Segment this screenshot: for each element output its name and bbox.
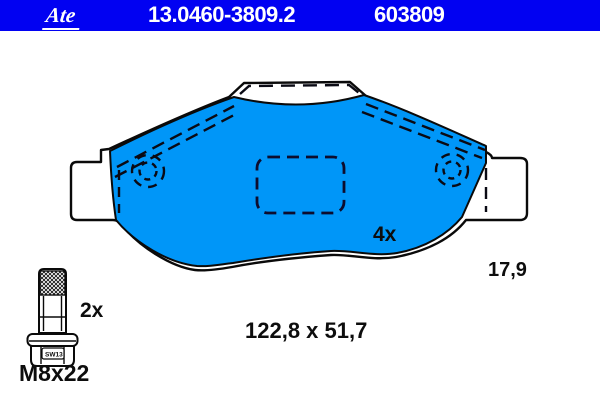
bolt-quantity-label: 2x xyxy=(80,299,104,322)
wrench-size-label: SW13 xyxy=(45,352,63,359)
bolt-thread-hatch xyxy=(40,271,65,295)
bolt-flange xyxy=(28,334,78,346)
bolt-size-label: M8x22 xyxy=(19,360,89,386)
pad-quantity-label: 4x xyxy=(373,223,397,246)
bolt-drawing: SW13 xyxy=(28,269,78,366)
brake-pad-diagram: 4x 17,9 122,8 x 51,7 SW13 2x M8x22 xyxy=(0,0,600,400)
pad-dimensions-label: 122,8 x 51,7 xyxy=(245,318,367,343)
pad-face xyxy=(110,95,486,266)
product-sheet: Ate 13.0460-3809.2 603809 4x 17 xyxy=(0,0,600,400)
pad-thickness-label: 17,9 xyxy=(488,259,527,281)
